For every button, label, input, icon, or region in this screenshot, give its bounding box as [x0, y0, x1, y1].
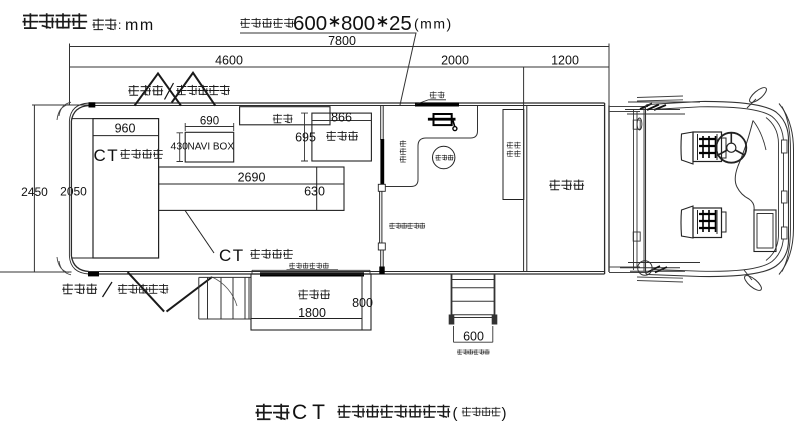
svg-text:mm: mm [125, 17, 155, 34]
svg-text:CT: CT [94, 146, 120, 165]
svg-text:695: 695 [295, 131, 316, 145]
svg-text:800: 800 [352, 296, 373, 310]
svg-text:): ) [502, 405, 507, 422]
svg-text:866: 866 [331, 111, 352, 125]
svg-text:690: 690 [200, 116, 219, 128]
svg-text:CT: CT [292, 401, 330, 424]
svg-text:(mm): (mm) [414, 16, 453, 32]
svg-text:7800: 7800 [328, 34, 356, 48]
svg-text:2690: 2690 [238, 171, 266, 185]
svg-text:960: 960 [115, 122, 136, 136]
svg-text:1800: 1800 [298, 306, 326, 320]
svg-text:4600: 4600 [215, 54, 243, 68]
svg-text:25: 25 [389, 12, 412, 35]
svg-text:NAVI BOX: NAVI BOX [188, 142, 235, 153]
svg-text:2450: 2450 [21, 185, 48, 199]
svg-text::: : [118, 18, 121, 32]
svg-text:(: ( [453, 405, 458, 422]
svg-text:430: 430 [171, 141, 189, 153]
svg-text:630: 630 [304, 185, 325, 199]
svg-text:2050: 2050 [60, 185, 87, 199]
svg-text:1200: 1200 [551, 54, 579, 68]
svg-text:800: 800 [341, 12, 375, 35]
svg-text:600: 600 [463, 330, 484, 344]
svg-text:600: 600 [293, 12, 327, 35]
svg-text:2000: 2000 [441, 54, 469, 68]
svg-text:CT: CT [219, 246, 245, 265]
